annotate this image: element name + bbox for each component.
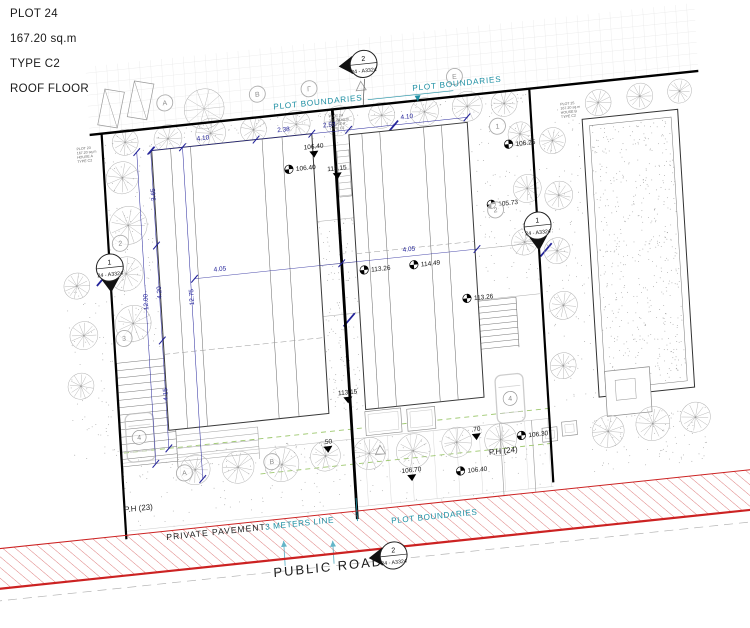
grid-bubble-label: 1 <box>495 123 499 130</box>
level-marker-value: 113.15 <box>338 388 358 397</box>
dimension-value: 4.20 <box>156 285 164 299</box>
tree-icon <box>667 78 692 104</box>
tree-icon <box>626 82 653 111</box>
level-marker: 113.15 <box>338 388 359 404</box>
dimension-value: 12.00 <box>142 293 150 310</box>
tree-icon <box>105 160 139 195</box>
rooftop-unit <box>365 408 402 436</box>
dimension-value: 12.75 <box>188 288 196 305</box>
survey-grid-mesh <box>86 3 699 135</box>
private-pavement-hatch <box>0 463 750 591</box>
level-marker: 106.70 <box>401 466 422 482</box>
grid-bubble: 3 <box>116 330 133 348</box>
rooftop-unit <box>407 406 436 431</box>
left-house-roof <box>152 134 329 431</box>
tree-icon <box>221 450 255 485</box>
ph-23-label: P.H (23) <box>124 502 153 514</box>
parking-stall-number: 4 <box>137 435 141 442</box>
grid-bubble-label: 2 <box>494 207 498 214</box>
rooftop-unit <box>562 421 578 437</box>
tree-icon <box>549 290 579 321</box>
level-marker: .50 <box>323 438 333 453</box>
dimension-value: 4.10 <box>196 134 209 142</box>
tree-icon <box>441 426 473 459</box>
grid-bubble-label: A <box>162 100 167 108</box>
level-marker-value: 106.70 <box>401 466 422 475</box>
tree-icon <box>544 180 574 211</box>
callout-number: 1 <box>535 217 539 224</box>
adjacent-roof-outline <box>582 109 694 397</box>
tree-icon <box>543 236 570 265</box>
tree-icon <box>584 88 611 117</box>
dimension-value: 3.65 <box>150 187 158 201</box>
grid-bubble-label: A <box>182 470 187 478</box>
ph-24-label: P.H (24) <box>489 445 518 457</box>
grid-bubble-label: 2 <box>118 241 122 248</box>
callout-left: 1 24 - A3324 <box>96 253 125 294</box>
tree-icon <box>69 320 99 351</box>
grid-bubble-label: 3 <box>122 336 126 343</box>
parking-stall-number: 4 <box>508 396 512 403</box>
grid-bubble: 2 <box>112 234 129 252</box>
grid-bubble-label: B <box>255 91 260 99</box>
tree-icon <box>680 401 712 434</box>
tree-icon <box>63 272 90 301</box>
tree-icon <box>395 432 431 470</box>
dimension-value: 4.15 <box>162 387 170 401</box>
callout-number: 1 <box>107 259 111 266</box>
level-marker-value: .70 <box>471 426 481 434</box>
tree-icon <box>67 372 94 401</box>
spot-elevation-value: 106.40 <box>467 466 488 475</box>
grid-bubble-label: B <box>269 459 274 467</box>
tree-icon <box>539 126 566 155</box>
tree-icon <box>352 436 386 471</box>
dimension-value: 2.38 <box>277 126 290 134</box>
callout-number: 2 <box>361 56 365 63</box>
dimension-value: 4.05 <box>213 265 226 273</box>
site-plan-drawing: 44 106.40113.26114.49113.26106.25105.731… <box>0 0 750 628</box>
callout-right: 1 24 - A3324 <box>523 211 552 252</box>
tree-icon <box>549 351 576 380</box>
plan-sheet: PLOT 24 167.20 sq.m TYPE C2 ROOF FLOOR 4… <box>0 0 750 628</box>
tree-icon <box>591 414 625 449</box>
level-marker-value: .50 <box>323 438 333 446</box>
dimension-value: 4.10 <box>400 113 413 121</box>
spot-elevation-value: 113.26 <box>474 293 494 302</box>
callout-number: 2 <box>391 547 395 554</box>
dimension-value: 4.05 <box>402 245 415 253</box>
mini-note-line: TYPE C2 <box>77 158 92 164</box>
mini-note-line: TYPE C2 <box>561 114 576 120</box>
grid-bubble: B <box>263 453 280 471</box>
grid-bubble: 1 <box>489 117 506 135</box>
spot-elevation-marker: 106.40 <box>456 464 488 476</box>
grid-bubble-label: Γ <box>307 86 311 93</box>
grid-bubble: A <box>176 464 193 482</box>
